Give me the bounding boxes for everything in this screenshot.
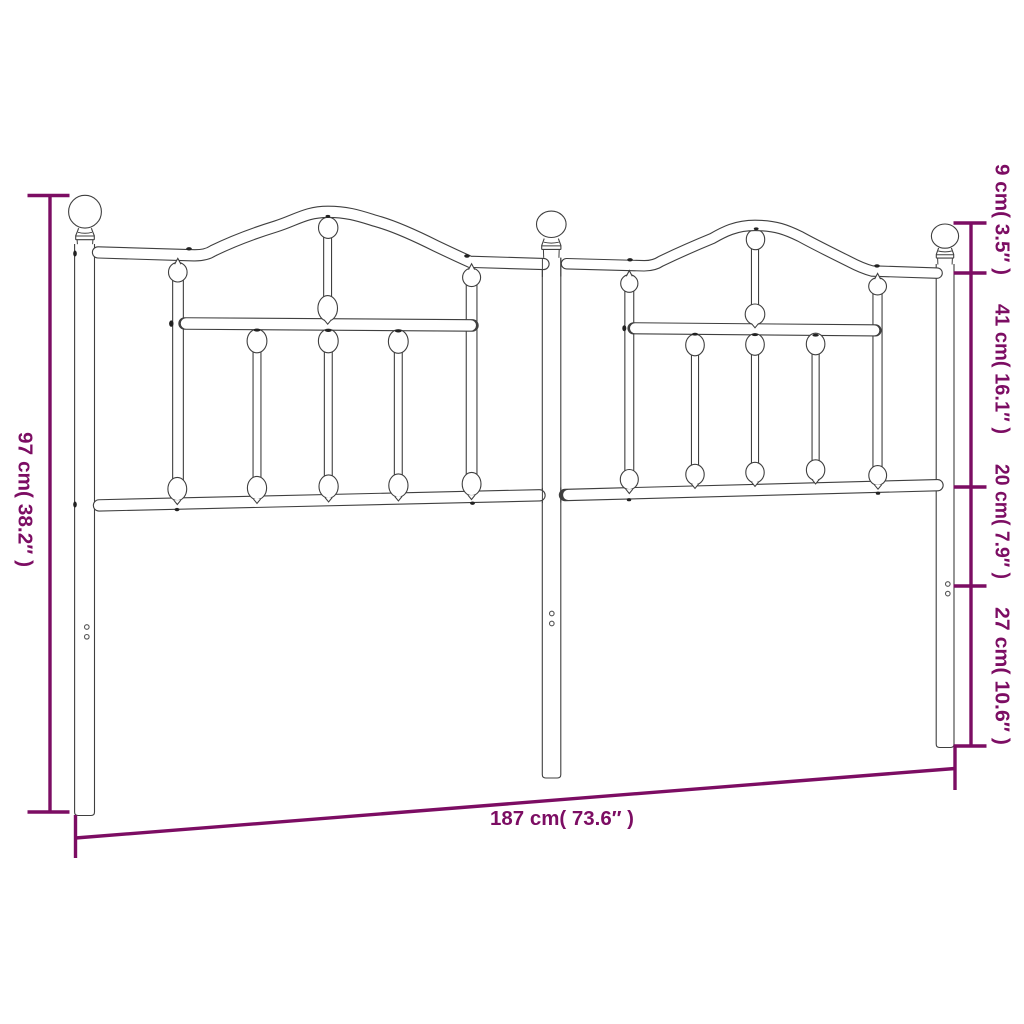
- svg-text:9 cm( 3.5″ ): 9 cm( 3.5″ ): [991, 164, 1014, 275]
- svg-text:187 cm( 73.6″ ): 187 cm( 73.6″ ): [490, 807, 634, 830]
- svg-text:97 cm( 38.2″ ): 97 cm( 38.2″ ): [14, 432, 37, 567]
- svg-text:20 cm( 7.9″ ): 20 cm( 7.9″ ): [991, 464, 1014, 579]
- svg-text:41 cm( 16.1″ ): 41 cm( 16.1″ ): [991, 304, 1014, 434]
- svg-text:27 cm( 10.6″ ): 27 cm( 10.6″ ): [991, 607, 1014, 745]
